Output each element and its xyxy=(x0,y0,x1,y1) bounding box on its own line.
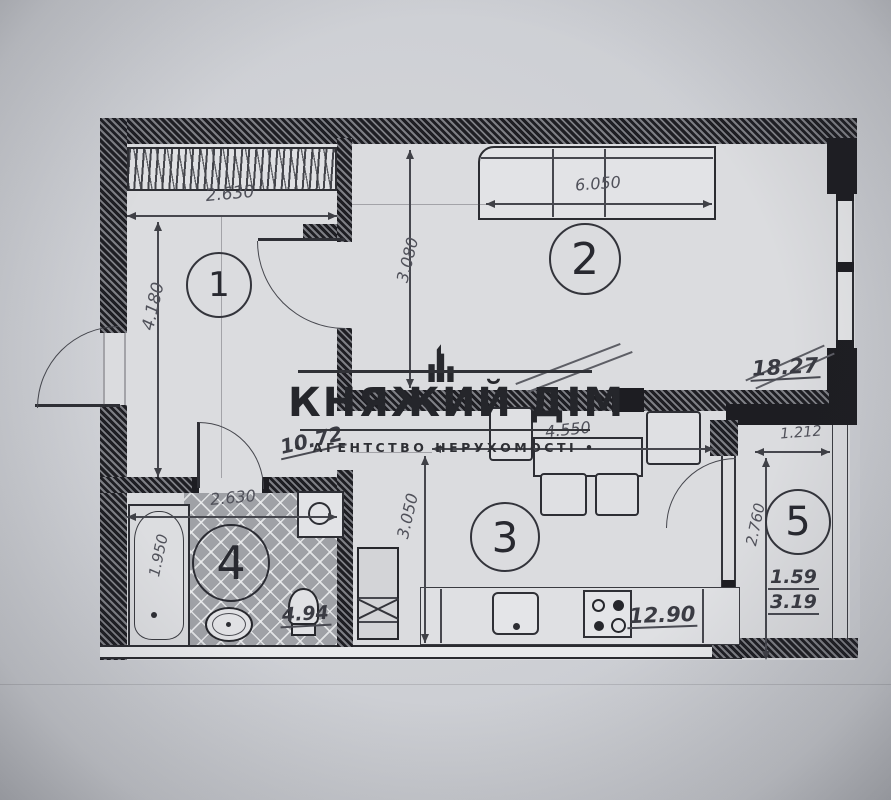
room1-circle: 1 xyxy=(186,252,252,318)
paper-fold-line xyxy=(0,684,891,685)
wall-room2-kitchen-pier xyxy=(612,388,644,412)
bathtub-drain xyxy=(151,612,157,618)
room3-circle: 3 xyxy=(470,502,540,572)
kitchen-sink-drain xyxy=(513,623,520,630)
outer-wall-top xyxy=(100,118,857,144)
extension-line-room2-window xyxy=(352,204,486,205)
arrow xyxy=(705,445,714,453)
arrow xyxy=(486,200,495,208)
stove-burner-1 xyxy=(592,599,605,612)
chair-bottom-right xyxy=(595,473,639,516)
balcony-right-glazing xyxy=(832,418,848,640)
dimline-room1-width xyxy=(127,215,337,217)
wall-room1-room2-upper xyxy=(337,138,352,242)
stove xyxy=(583,590,632,638)
extension-line-kitchen xyxy=(352,452,432,453)
stove-burner-4 xyxy=(611,618,626,633)
dimline-room1-height xyxy=(157,222,159,477)
balcony-wall-top xyxy=(726,404,857,425)
room2-circle: 2 xyxy=(549,223,621,295)
arrow xyxy=(703,200,712,208)
room2-right-window-mullion-top xyxy=(836,192,854,201)
wall-block-right-mid xyxy=(827,348,857,410)
bathroom-wall-top-left xyxy=(100,477,192,493)
room3-area: 12.90 xyxy=(627,603,698,629)
arrow xyxy=(328,513,337,521)
arrow xyxy=(328,212,337,220)
room5-area-fraction: 1.59 3.19 xyxy=(768,568,819,615)
entrance-door-arc xyxy=(37,326,119,408)
dimline-kitchen-height xyxy=(424,456,426,643)
chair-right xyxy=(646,411,701,465)
stove-burner-3 xyxy=(594,621,604,631)
room5-area-total: 3.19 xyxy=(768,593,819,615)
balcony-wall-block-upper xyxy=(710,420,738,456)
entrance-opening-line-inner xyxy=(124,333,126,405)
room4-number: 4 xyxy=(216,536,245,590)
dimline-balcony-width xyxy=(755,451,830,453)
cabinet-shelf-line-1 xyxy=(359,597,397,599)
bathroom-sink-drain xyxy=(226,622,231,627)
arrow xyxy=(421,634,429,643)
arrow xyxy=(821,448,830,456)
paper-patch-right-of-balcony xyxy=(850,425,860,638)
dining-table xyxy=(533,437,643,477)
stove-burner-2 xyxy=(613,600,624,611)
room2-area: 18.27 xyxy=(749,354,821,382)
room2-top-window-inner-line xyxy=(481,157,713,159)
room2-number: 2 xyxy=(571,234,599,285)
arrow xyxy=(421,456,429,465)
room2-right-window-mullion-mid xyxy=(836,262,854,272)
room1-number: 1 xyxy=(208,265,230,305)
room5-area-coefficient: 1.59 xyxy=(768,568,819,590)
room3-number: 3 xyxy=(492,513,519,562)
counter-separator-1 xyxy=(440,589,442,643)
wall-corner-top-right xyxy=(827,138,857,194)
outer-wall-left-upper xyxy=(100,118,127,333)
cabinet-shelf-line-2 xyxy=(359,621,397,623)
arrow xyxy=(406,150,414,159)
room2-right-window-mullion-bottom xyxy=(836,340,854,350)
arrow xyxy=(127,212,136,220)
dimline-room2-window xyxy=(486,203,712,205)
outer-wall-left-lower xyxy=(100,405,127,660)
cabinet xyxy=(357,547,399,640)
arrow xyxy=(406,379,414,388)
counter-separator-2 xyxy=(702,589,704,643)
arrow xyxy=(762,651,770,660)
arrow xyxy=(762,458,770,467)
arrow xyxy=(755,448,764,456)
room5-number: 5 xyxy=(785,499,810,545)
room5-circle: 5 xyxy=(765,489,831,555)
arrow xyxy=(154,468,162,477)
floor-plan-photo: 2.630 4.180 6.050 3.080 4.550 3.050 2.63… xyxy=(0,0,891,800)
room4-area: 4.94 xyxy=(279,604,331,629)
room4-circle: 4 xyxy=(192,524,270,602)
arrow xyxy=(127,513,136,521)
dimline-kitchen-width xyxy=(432,448,714,450)
chair-bottom-left xyxy=(540,473,587,516)
arrow xyxy=(432,445,441,453)
entrance-opening-line-outer xyxy=(103,333,105,405)
outer-wall-bottom xyxy=(100,645,742,659)
arrow xyxy=(154,222,162,231)
